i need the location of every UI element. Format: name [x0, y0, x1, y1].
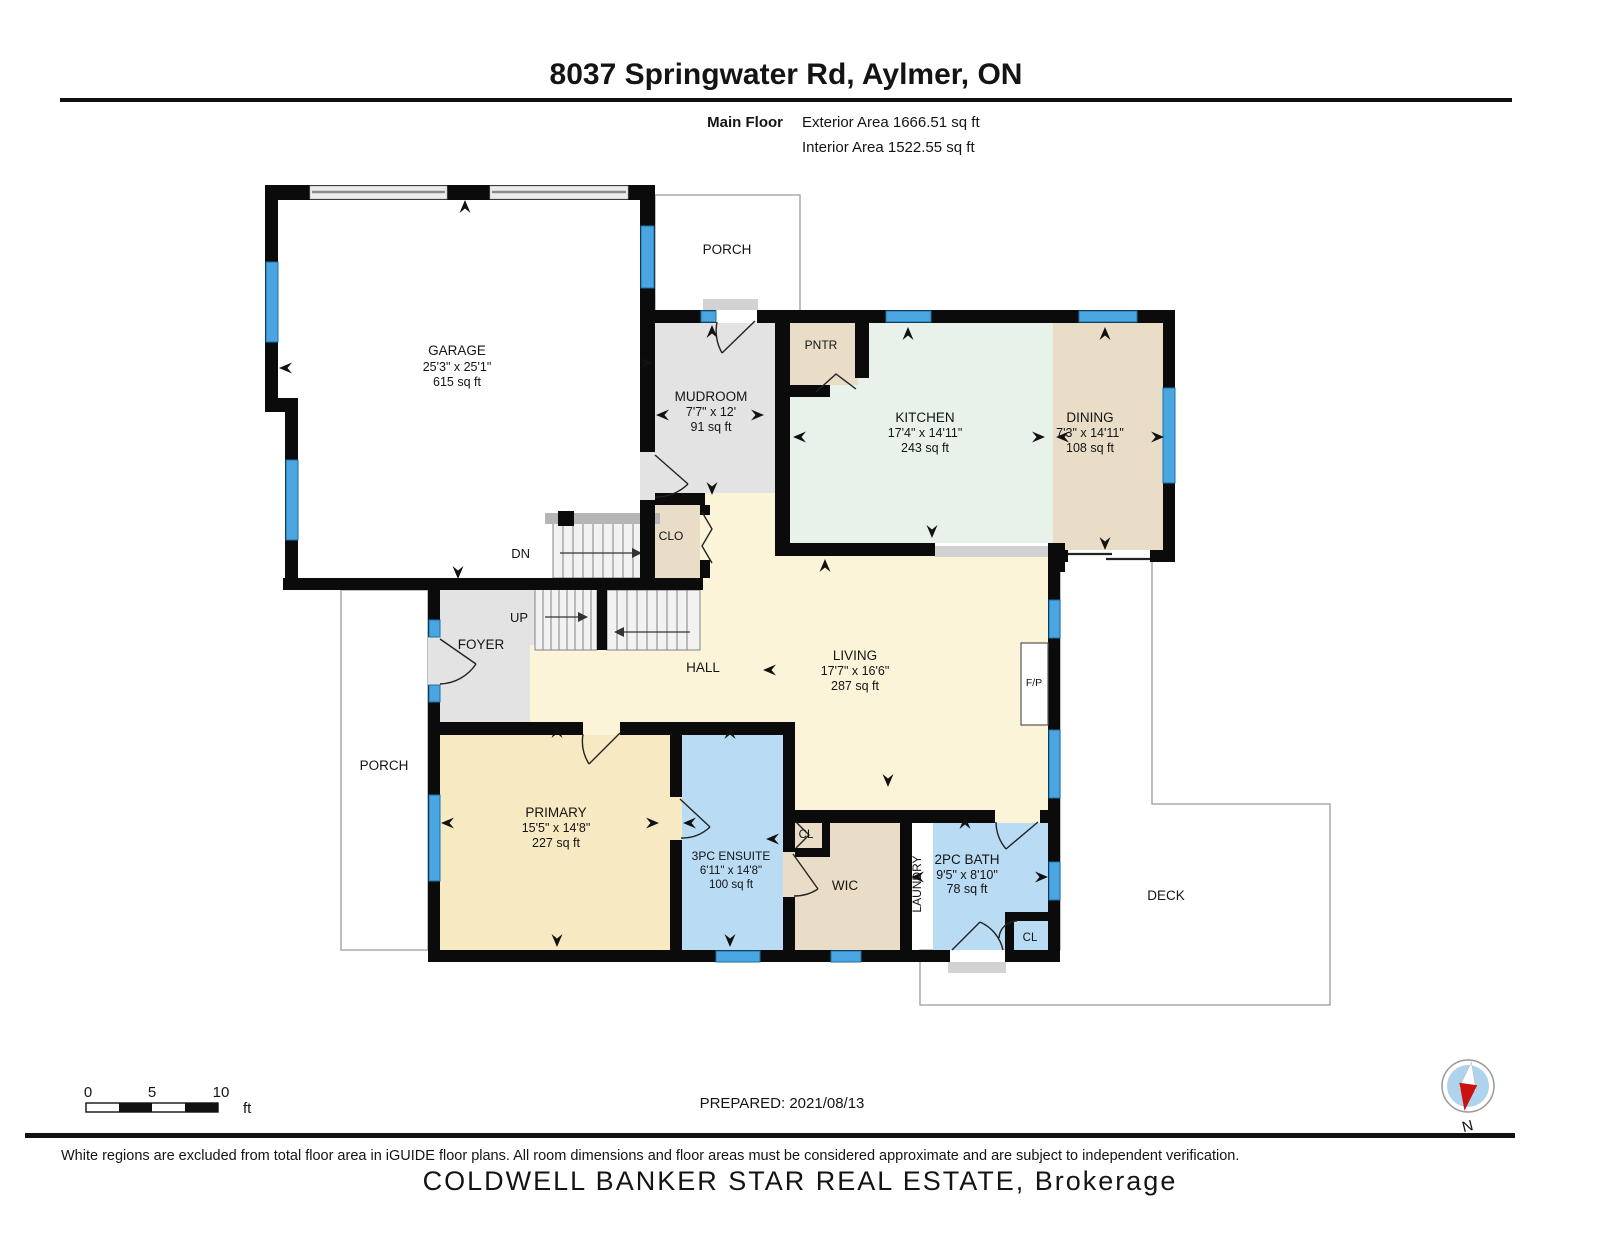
label-porch-left: PORCH — [360, 758, 409, 773]
label-cl-bath: CL — [1023, 932, 1038, 944]
scale-0: 0 — [84, 1084, 92, 1101]
window-dining-top — [1079, 311, 1137, 322]
label-living-area: 287 sq ft — [831, 679, 879, 693]
window-mudroom-top — [701, 311, 716, 322]
label-garage-dims: 25'3" x 25'1" — [423, 360, 492, 374]
label-dining-area: 108 sq ft — [1066, 441, 1114, 455]
label-bath-area: 78 sq ft — [947, 882, 989, 896]
label-dining: DINING — [1066, 410, 1113, 425]
label-stairs-down: DN — [511, 546, 530, 561]
label-hall: HALL — [686, 660, 720, 675]
window-entry-sidelight-2 — [429, 685, 440, 702]
label-cl-hall: CL — [799, 829, 814, 841]
halfwall-kitchen-living — [935, 546, 1048, 557]
window-primary-left — [429, 795, 440, 881]
label-mudroom-dims: 7'7" x 12' — [686, 405, 736, 419]
footer-divider — [25, 1133, 1515, 1138]
floorplan-page: 8037 Springwater Rd, Aylmer, ON Main Flo… — [0, 0, 1600, 1237]
page-title: 8037 Springwater Rd, Aylmer, ON — [550, 58, 1023, 91]
label-pntr: PNTR — [805, 338, 838, 352]
scale-5: 5 — [148, 1084, 156, 1101]
step-porch-mudroom — [703, 299, 758, 311]
window-kitchen-top — [886, 311, 931, 322]
label-kitchen-dims: 17'4" x 14'11" — [888, 426, 963, 440]
label-garage-area: 615 sq ft — [433, 375, 481, 389]
label-ensuite-area: 100 sq ft — [709, 879, 754, 891]
label-primary-area: 227 sq ft — [532, 836, 580, 850]
title-divider — [60, 98, 1512, 102]
window-dining-right — [1163, 388, 1175, 483]
step-bath-deck — [948, 962, 1006, 973]
label-primary: PRIMARY — [525, 805, 586, 820]
window-garage-left-upper — [266, 262, 278, 342]
floor-label: Main Floor — [707, 114, 783, 131]
label-mudroom: MUDROOM — [675, 389, 748, 404]
exterior-area: Exterior Area 1666.51 sq ft — [802, 114, 980, 131]
window-bath-right — [1049, 862, 1060, 900]
label-living-dims: 17'7" x 16'6" — [821, 664, 890, 678]
label-clo: CLO — [659, 529, 684, 543]
label-stairs-up: UP — [510, 610, 528, 625]
floorplan-canvas: 8037 Springwater Rd, Aylmer, ON Main Flo… — [0, 0, 1600, 1237]
label-bath: 2PC BATH — [934, 852, 999, 867]
label-kitchen-area: 243 sq ft — [901, 441, 949, 455]
window-living-right-lower — [1049, 730, 1060, 798]
label-fireplace: F/P — [1026, 677, 1042, 689]
label-foyer: FOYER — [458, 637, 505, 652]
label-living: LIVING — [833, 648, 877, 663]
scale-bar: 0 5 10 ft — [84, 1084, 252, 1117]
label-garage: GARAGE — [428, 343, 486, 358]
room-hall — [530, 645, 710, 723]
label-ensuite-dims: 6'11" x 14'8" — [700, 865, 762, 877]
label-kitchen: KITCHEN — [895, 410, 954, 425]
label-laundry: LAUNDRY — [910, 855, 924, 912]
label-bath-dims: 9'5" x 8'10" — [936, 868, 998, 882]
label-dining-dims: 7'3" x 14'11" — [1056, 426, 1124, 440]
prepared-date: PREPARED: 2021/08/13 — [700, 1095, 865, 1112]
scale-10: 10 — [213, 1084, 230, 1101]
label-primary-dims: 15'5" x 14'8" — [522, 821, 591, 835]
stairs-newel — [558, 511, 574, 526]
compass: N — [1442, 1060, 1494, 1136]
window-garage-right — [641, 226, 654, 288]
window-garage-left-lower — [286, 460, 298, 540]
label-deck: DECK — [1147, 888, 1185, 903]
stairs-down-treads — [553, 518, 648, 578]
label-mudroom-area: 91 sq ft — [691, 420, 733, 434]
window-living-right-upper — [1049, 600, 1060, 638]
window-wic-bottom — [831, 951, 861, 962]
label-wic: WIC — [832, 878, 858, 893]
interior-area: Interior Area 1522.55 sq ft — [802, 139, 975, 156]
disclaimer-text: White regions are excluded from total fl… — [61, 1148, 1239, 1164]
label-porch-top: PORCH — [703, 242, 752, 257]
room-ensuite — [682, 735, 783, 950]
brokerage-watermark: COLDWELL BANKER STAR REAL ESTATE, Broker… — [423, 1166, 1178, 1196]
window-entry-sidelight-1 — [429, 620, 440, 637]
room-pntr — [790, 323, 858, 385]
label-ensuite: 3PC ENSUITE — [692, 849, 771, 863]
window-ensuite-bottom — [716, 951, 760, 962]
scale-unit: ft — [243, 1100, 252, 1117]
stairs-return-treads — [607, 590, 700, 650]
